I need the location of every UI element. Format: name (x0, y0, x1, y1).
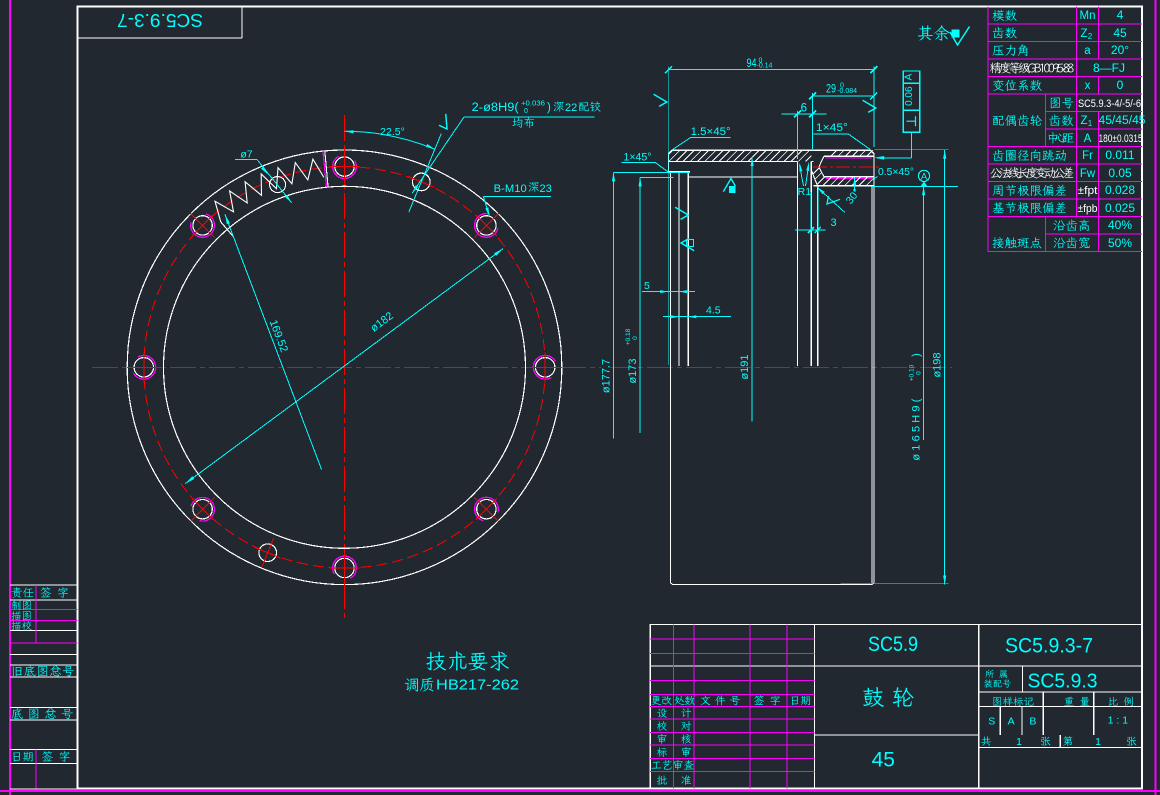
svg-text:1.5×45°: 1.5×45° (691, 126, 731, 138)
svg-text:29: 29 (826, 84, 836, 96)
svg-text:40%: 40% (1108, 218, 1132, 232)
svg-text:x: x (1085, 80, 1091, 92)
svg-text:Fw: Fw (1080, 168, 1096, 180)
svg-text:B: B (1029, 716, 1036, 728)
svg-text:1: 1 (1095, 736, 1101, 748)
svg-text:0.05: 0.05 (1108, 166, 1132, 180)
svg-text:50%: 50% (1108, 236, 1132, 250)
svg-text:22.5°: 22.5° (380, 126, 405, 138)
svg-text:ø165H9(: ø165H9( (911, 395, 923, 460)
svg-text:SC5.9.3: SC5.9.3 (1028, 671, 1098, 693)
svg-text:A: A (921, 172, 928, 183)
svg-text:45: 45 (1113, 26, 1127, 40)
svg-text:180±0.0315: 180±0.0315 (1099, 133, 1143, 145)
svg-text:Z: Z (1080, 115, 1087, 127)
svg-text:SC5.9.3-4/-5/-6: SC5.9.3-4/-5/-6 (1078, 98, 1141, 110)
svg-text:1: 1 (1016, 736, 1022, 748)
svg-text:S: S (988, 716, 995, 728)
svg-text:): ) (911, 353, 923, 357)
svg-text:0.5×45°: 0.5×45° (878, 166, 914, 178)
svg-text:ø191: ø191 (739, 354, 751, 379)
svg-text:8—FJ: 8—FJ (1093, 61, 1125, 75)
svg-text:0: 0 (632, 336, 639, 340)
svg-text:3: 3 (830, 217, 836, 229)
svg-text:+0.10: +0.10 (909, 364, 916, 381)
svg-text:4.5: 4.5 (706, 305, 721, 317)
svg-text:Mn: Mn (1080, 10, 1096, 22)
svg-text:1×45°: 1×45° (816, 122, 848, 134)
svg-text:HB217-262: HB217-262 (436, 678, 519, 694)
svg-text:±fpb: ±fpb (1078, 203, 1098, 215)
svg-text:Fr: Fr (1082, 150, 1093, 162)
svg-text:1×45°: 1×45° (624, 151, 652, 163)
svg-text:a: a (1084, 45, 1091, 57)
svg-text:45: 45 (872, 749, 895, 772)
svg-text:A: A (904, 73, 915, 80)
svg-text:4: 4 (1117, 8, 1124, 22)
svg-text:±fpt: ±fpt (1078, 185, 1098, 197)
svg-text:SC5.9: SC5.9 (868, 633, 918, 656)
svg-text:ø7: ø7 (240, 149, 252, 161)
svg-text:0.025: 0.025 (1105, 201, 1135, 215)
svg-text:5: 5 (644, 280, 650, 292)
svg-text:20°: 20° (1111, 43, 1129, 57)
svg-text:1 : 1: 1 : 1 (1108, 715, 1129, 727)
svg-text:B-M10: B-M10 (494, 183, 527, 195)
svg-text:0: 0 (1117, 78, 1124, 92)
svg-text:6: 6 (801, 102, 807, 114)
svg-text:R1: R1 (798, 186, 812, 198)
svg-text:-0.14: -0.14 (757, 63, 773, 70)
svg-text:23: 23 (540, 183, 552, 195)
svg-text:1: 1 (1088, 119, 1093, 128)
svg-text:2-ø8H9(: 2-ø8H9( (472, 102, 519, 114)
svg-text:ø177.7: ø177.7 (601, 359, 613, 393)
svg-text:0: 0 (916, 371, 923, 375)
svg-text:2: 2 (1088, 32, 1093, 41)
svg-text:SC5.9.3-7: SC5.9.3-7 (117, 10, 203, 30)
svg-text:Z: Z (1080, 28, 1087, 40)
svg-text:-0.084: -0.084 (837, 88, 857, 95)
svg-text:ø198: ø198 (932, 352, 944, 377)
svg-text:SC5.9.3-7: SC5.9.3-7 (1005, 635, 1093, 658)
svg-text:A: A (1008, 716, 1015, 728)
svg-text:22: 22 (565, 102, 577, 114)
svg-text:ø173: ø173 (627, 358, 639, 383)
svg-text:A: A (1084, 133, 1092, 145)
svg-text:0.011: 0.011 (1105, 148, 1134, 162)
svg-text:0.06: 0.06 (904, 86, 915, 106)
svg-text:45/45/45: 45/45/45 (1099, 115, 1146, 127)
svg-text:+0.18: +0.18 (625, 328, 632, 345)
svg-text:): ) (547, 102, 551, 114)
svg-text:0: 0 (524, 108, 528, 115)
svg-text:+0.036: +0.036 (521, 101, 545, 108)
svg-text:94: 94 (747, 58, 757, 70)
svg-text:0.028: 0.028 (1105, 183, 1135, 197)
